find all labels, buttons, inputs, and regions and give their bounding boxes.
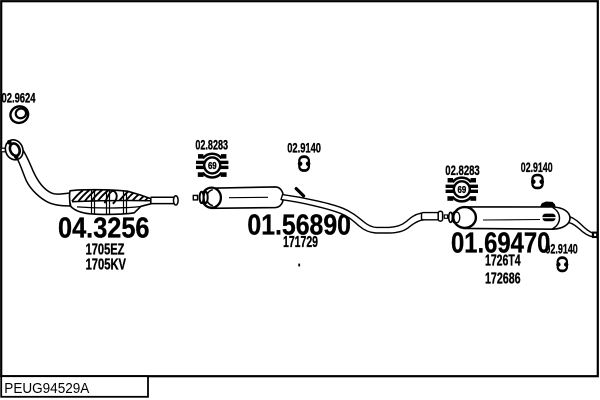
svg-text:04.3256: 04.3256: [58, 213, 150, 245]
svg-text:02.8283: 02.8283: [445, 162, 480, 178]
svg-text:02.8283: 02.8283: [195, 137, 228, 153]
svg-text:02.9140: 02.9140: [287, 139, 321, 155]
svg-text:172686: 172686: [485, 271, 521, 288]
svg-text:171729: 171729: [283, 234, 318, 251]
svg-text:02.9140: 02.9140: [545, 241, 578, 257]
svg-text:02.9140: 02.9140: [521, 159, 553, 175]
svg-text:69: 69: [458, 185, 467, 196]
svg-text:1726T4: 1726T4: [485, 252, 521, 269]
svg-text:1705KV: 1705KV: [86, 256, 127, 273]
svg-text:02.9624: 02.9624: [2, 90, 36, 106]
svg-text:PEUG94529A: PEUG94529A: [4, 380, 90, 397]
svg-text:69: 69: [208, 161, 217, 172]
